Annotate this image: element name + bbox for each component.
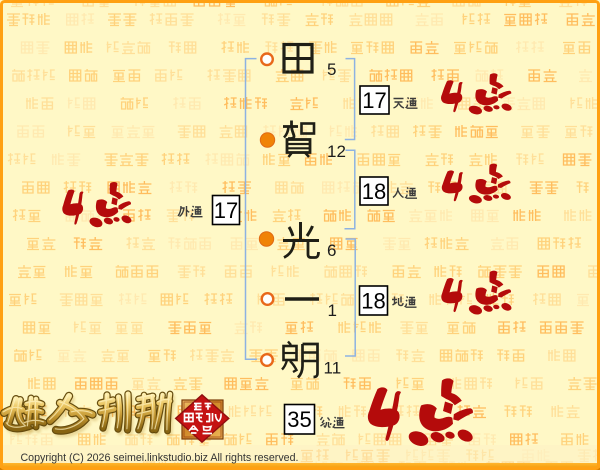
svg-text:Copyright (C) 2026 seimei.link: Copyright (C) 2026 seimei.linkstudio.biz… [21,452,299,464]
svg-text:17: 17 [362,88,386,113]
svg-text:6: 6 [327,241,336,260]
svg-text:5: 5 [327,60,336,79]
svg-text:17: 17 [214,198,238,223]
svg-text:18: 18 [361,288,385,313]
svg-text:1: 1 [328,301,337,320]
svg-text:35: 35 [287,407,311,432]
svg-text:18: 18 [362,179,386,204]
svg-text:11: 11 [324,359,342,378]
svg-text:12: 12 [327,142,346,161]
